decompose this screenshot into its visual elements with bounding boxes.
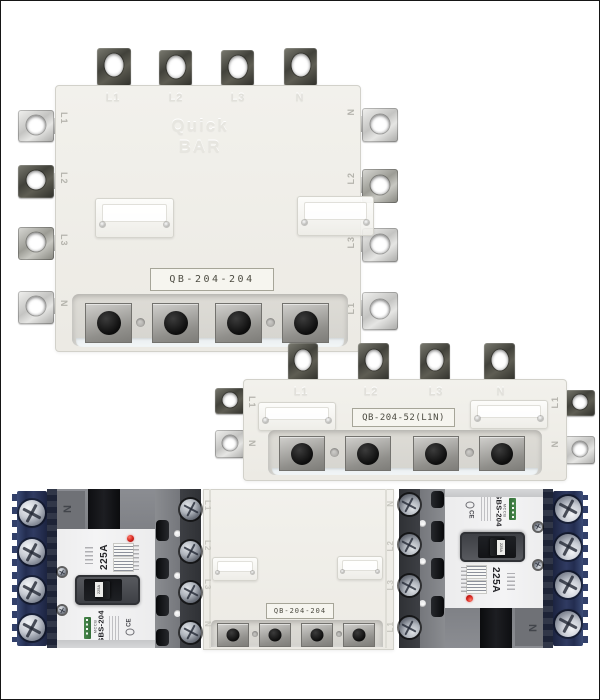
phase-label: L1 — [203, 500, 211, 511]
spec-fineprint — [479, 497, 491, 521]
phase-label: L2 — [387, 540, 395, 551]
cert-circle-icon — [125, 629, 134, 636]
clip-screw — [251, 571, 254, 574]
breaker-bottom-band — [445, 489, 543, 497]
terminal-pad — [259, 623, 291, 647]
terminal-hole — [353, 629, 366, 642]
face-screw — [534, 561, 542, 569]
cert-circle-icon — [466, 502, 475, 509]
brand-label-strip — [509, 498, 516, 520]
phase-bump — [156, 595, 169, 616]
model-plate: QB-204-204 — [266, 603, 334, 619]
barcode-label — [466, 580, 487, 594]
terminal-divider — [47, 489, 57, 648]
switch-slot — [88, 489, 120, 529]
red-indicator — [127, 535, 134, 542]
toggle-switch: 225A — [75, 575, 140, 605]
terminal-pad — [217, 623, 249, 647]
phase-bump — [156, 629, 169, 646]
screw-terminal — [399, 534, 420, 555]
screw-terminal — [180, 541, 201, 562]
barcode-label — [113, 558, 134, 572]
clip-screw — [341, 570, 344, 573]
barcode-label — [113, 543, 134, 557]
terminal-hole — [269, 629, 282, 642]
breaker-bottom-band — [57, 640, 155, 648]
toggle-label: 225A — [95, 582, 103, 597]
breaker-right-photo: N 225A 225A MCCB SBS-204 CE — [397, 489, 590, 648]
terminal-hole — [311, 629, 324, 642]
screw-terminal — [555, 572, 581, 598]
model-label: MCCB SBS-204 — [92, 610, 107, 644]
screw-terminal — [399, 575, 420, 596]
breaker-model: SBS-204 — [97, 610, 105, 643]
spec-text-micro — [85, 547, 93, 564]
terminal-pad — [301, 623, 333, 647]
breaker-left-photo: N 225A 225A MCCB SBS-204 CE — [10, 489, 203, 648]
spec-text-micro — [133, 545, 139, 570]
toggle-switch: 225A — [460, 532, 525, 562]
face-screw — [534, 523, 542, 531]
phase-label: L2 — [203, 540, 211, 551]
phase-label: L1 — [387, 621, 395, 632]
phase-bump — [156, 520, 169, 541]
screw-terminal — [555, 496, 581, 522]
breaker-model: SBS-204 — [495, 494, 503, 527]
clip-screw — [216, 571, 219, 574]
screw-terminal — [180, 499, 201, 520]
phase-bump — [431, 596, 444, 617]
terminal-hole — [227, 629, 240, 642]
phase-bump — [431, 558, 444, 579]
phase-bump — [431, 521, 444, 542]
spec-text-micro — [507, 573, 515, 590]
indicator-dot — [419, 600, 426, 607]
screw-terminal — [180, 582, 201, 603]
face-screw — [58, 606, 66, 614]
screw-terminal — [180, 622, 201, 643]
guide-dot — [252, 631, 258, 637]
screw-terminal — [19, 539, 45, 565]
rating-text: 225A — [489, 564, 501, 596]
screw-terminal — [399, 494, 420, 515]
screw-terminal — [399, 617, 420, 638]
certification-mark: CE — [462, 502, 480, 519]
pole-marking: N — [525, 620, 539, 636]
indicator-dot — [419, 558, 426, 565]
brand-label-strip — [84, 617, 91, 639]
pole-marking: N — [61, 501, 75, 517]
screw-terminal — [555, 534, 581, 560]
face-screw — [58, 568, 66, 576]
phase-bump — [431, 491, 444, 508]
spec-fineprint — [109, 616, 121, 640]
screw-terminal — [19, 577, 45, 603]
barcode-label — [466, 565, 487, 579]
clip-screw — [376, 570, 379, 573]
certification-mark: CE — [121, 619, 139, 636]
phase-label: L3 — [387, 579, 395, 590]
screw-terminal — [555, 611, 581, 637]
red-indicator — [466, 595, 473, 602]
toggle-label: 225A — [497, 540, 505, 555]
model-label: MCCB SBS-204 — [494, 494, 509, 528]
terminal-pad — [343, 623, 375, 647]
switch-slot — [480, 608, 512, 648]
phase-label: N — [387, 500, 395, 507]
screw-terminal — [19, 500, 45, 526]
phase-label: L3 — [203, 579, 211, 590]
fastener-clip — [337, 556, 383, 580]
spec-text-micro — [461, 567, 467, 592]
phase-bump — [156, 558, 169, 579]
terminal-divider — [543, 489, 553, 648]
product-photo-collage: L1 L2 L3 N Quick BAR L1 L2 L3 N N L2 L3 … — [0, 0, 600, 700]
rating-text: 225A — [99, 541, 111, 573]
fastener-clip — [212, 557, 258, 581]
indicator-dot — [419, 520, 426, 527]
screw-terminal — [19, 615, 45, 641]
phase-label: N — [203, 621, 211, 628]
guide-dot — [336, 631, 342, 637]
